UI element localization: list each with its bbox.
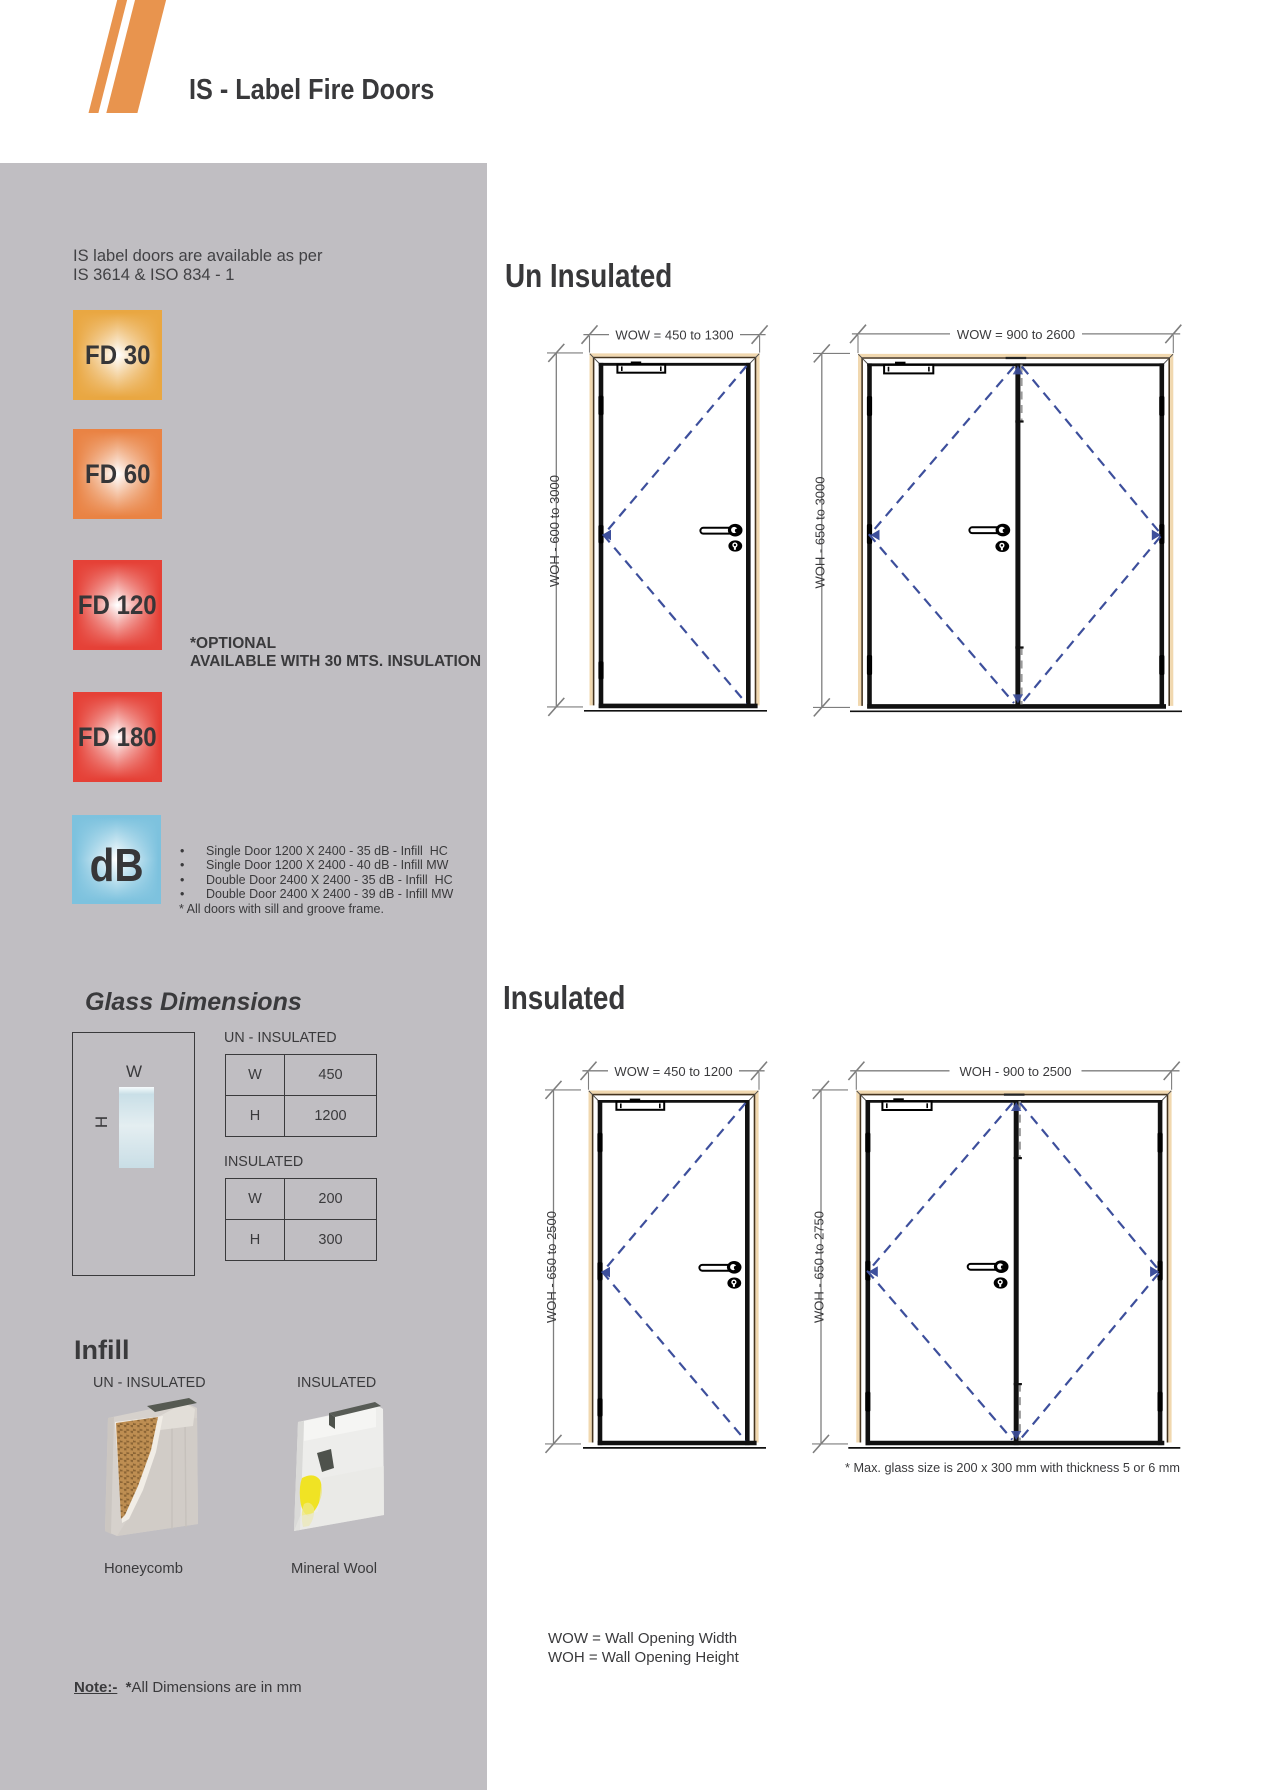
svg-text:WOW = 450 to 1200: WOW = 450 to 1200: [614, 1064, 732, 1079]
svg-text:WOW = 450 to 1300: WOW = 450 to 1300: [615, 328, 733, 343]
svg-text:WOH - 650 to 3000: WOH - 650 to 3000: [812, 477, 827, 589]
svg-text:WOH - 650 to 2500: WOH - 650 to 2500: [544, 1211, 559, 1323]
svg-text:WOH - 650 to 2750: WOH - 650 to 2750: [812, 1211, 827, 1323]
svg-text:WOH - 900 to 2500: WOH - 900 to 2500: [960, 1064, 1072, 1079]
svg-text:WOW = 900 to 2600: WOW = 900 to 2600: [957, 327, 1075, 342]
svg-text:WOH - 600 to 3000: WOH - 600 to 3000: [547, 475, 562, 587]
